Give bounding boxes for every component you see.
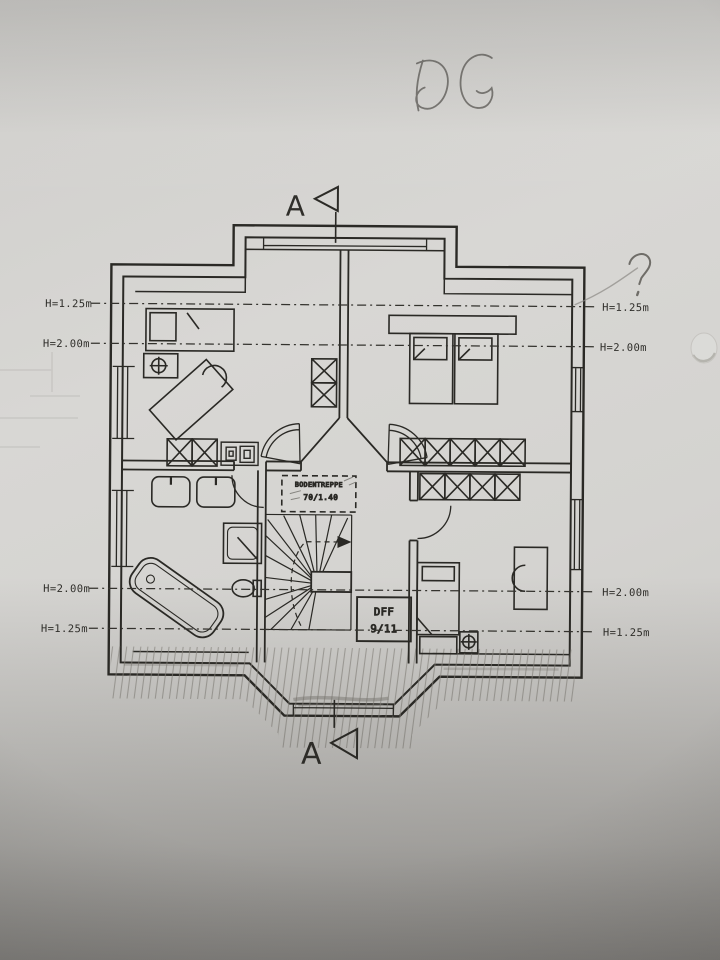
section-arrow-icon xyxy=(315,187,338,211)
door-swing xyxy=(418,506,451,539)
door-swing xyxy=(388,424,427,464)
section-label: A xyxy=(301,737,322,772)
height-label: H=1.25m xyxy=(602,302,649,314)
letter-D xyxy=(416,60,448,110)
dormer-window xyxy=(264,237,427,250)
height-label: H=1.25m xyxy=(45,298,92,310)
handwritten-floor-label xyxy=(416,54,493,111)
desk-icon xyxy=(514,547,547,609)
punch-hole xyxy=(691,333,717,363)
door-swing xyxy=(232,475,264,507)
attic-hatch: BODENTREPPE 70/1.40 xyxy=(282,476,356,513)
height-labels-right: H=1.25m H=2.00m H=2.00m H=1.25m xyxy=(598,302,652,639)
height-label: H=2.00m xyxy=(43,583,90,595)
door-swing xyxy=(261,423,300,463)
bathtub-icon xyxy=(124,552,229,643)
stair-hall: BODENTREPPE 70/1.40 DFF 9/11 xyxy=(265,475,412,641)
outer-walls xyxy=(108,224,584,717)
section-marker-top: A xyxy=(286,187,338,243)
attic-hatch-size: 70/1.40 xyxy=(303,493,338,502)
roof-window-box: DFF 9/11 xyxy=(357,597,411,641)
floorplan-photo: BODENTREPPE 70/1.40 DFF 9/11 xyxy=(0,0,720,960)
winder-stair xyxy=(265,514,352,630)
bathroom xyxy=(124,474,264,643)
single-bed-icon xyxy=(146,309,234,352)
room-top-left xyxy=(143,309,337,467)
single-bed-icon xyxy=(417,563,460,635)
attic-hatch-label: BODENTREPPE xyxy=(295,481,343,489)
room-bottom-right xyxy=(417,474,548,655)
height-label: H=2.00m xyxy=(43,338,90,350)
room-top-right xyxy=(388,315,526,466)
bleed-through-lines xyxy=(0,352,80,447)
roof-window-label: DFF xyxy=(374,606,394,618)
letter-G xyxy=(460,54,492,108)
interior-walls xyxy=(121,248,573,664)
section-label: A xyxy=(286,190,305,223)
radiator-icon xyxy=(144,354,178,378)
height-labels-left: H=1.25m H=2.00m H=2.00m H=1.25m xyxy=(41,298,92,635)
roof-window-size: 9/11 xyxy=(370,623,397,635)
pencil-hatching xyxy=(110,646,575,749)
height-label: H=2.00m xyxy=(602,587,649,599)
handwritten-question-mark xyxy=(575,254,650,306)
height-label: H=2.00m xyxy=(600,342,647,354)
wardrobe-icon xyxy=(167,439,217,466)
walk-line-arrow-icon xyxy=(337,536,351,548)
double-bed-icon xyxy=(388,315,516,404)
window-right-bottom xyxy=(570,500,582,570)
window-right-top xyxy=(571,368,583,412)
washbasin-icon xyxy=(152,477,235,508)
shower-icon xyxy=(223,523,261,563)
floor-plan-drawing: BODENTREPPE 70/1.40 DFF 9/11 xyxy=(0,0,720,960)
wardrobe-icon xyxy=(420,474,520,501)
tall-cabinet-icon xyxy=(311,359,336,407)
height-label: H=1.25m xyxy=(603,627,650,639)
height-label: H=1.25m xyxy=(41,623,88,635)
